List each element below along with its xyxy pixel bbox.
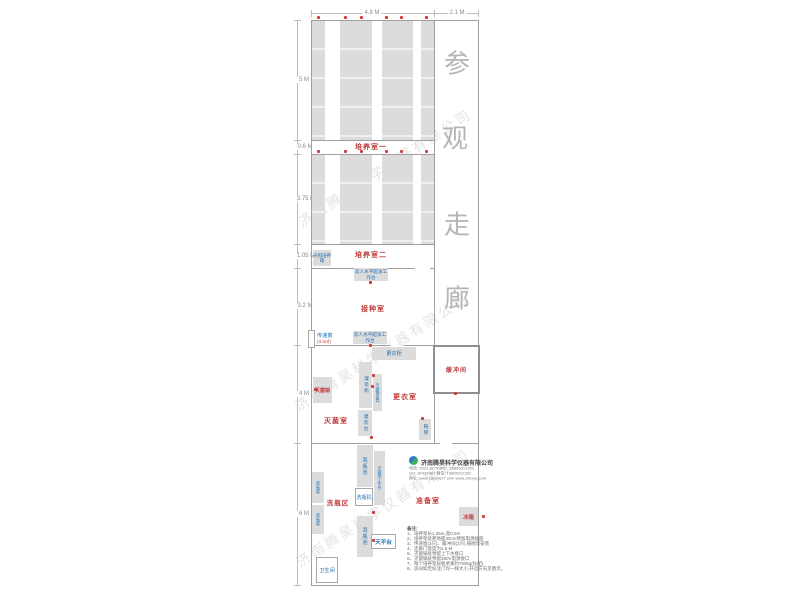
dimension-tick [434,10,435,17]
ss-stool-label: 不锈钢条凳 [375,383,381,403]
outlet-dot [360,16,363,19]
outlet-dot [317,150,320,153]
dimension-label-5m: 5 M [297,77,311,83]
filling-table-label: 灌装台 [362,414,369,431]
outlet-dot [385,150,388,153]
dimension-label-top-left: 4.8 M [362,10,381,16]
outlet-dot [454,392,457,395]
light-incubator-box: 光照培养箱 [313,250,331,266]
outlet-dot [369,281,372,284]
dimension-tick [294,268,301,269]
fridge-label: 冰箱 [463,513,474,521]
pass-window-label: 传递窗 [317,332,333,339]
dimension-tick [294,443,301,444]
ss-worktable-box: 不锈钢工作台 [374,451,385,505]
bottle-rack-2-label: 放瓶架 [315,513,321,526]
culture-rack [398,21,413,140]
corridor-char-3: 走 [444,205,470,242]
outlet-dot [372,511,375,514]
buffer-room-box: 缓冲间 [433,345,480,394]
culture-rack [382,155,398,244]
wall-culture2-top [311,244,434,245]
outlet-dot [317,16,320,19]
dimension-tick [294,140,301,141]
fridge-box: 冰箱 [459,507,478,526]
outlet-dot [400,16,403,19]
dimension-label-6m: 6 M [297,511,311,517]
dimension-tick [294,20,301,21]
clean-bench-1-box: 双人水平超净工作台 [354,268,388,281]
wall-culture1-bottom [311,154,434,155]
shoe-rack-label: 鞋架 [422,424,429,436]
wall-corridor-divider-lower [434,394,435,443]
soak-pool-2-label: 泡瓶池 [362,527,369,546]
bottle-rack-2-box: 放瓶架 [312,505,324,534]
balance-table-label: 天平台 [375,538,392,546]
room-label-buffer: 缓冲间 [446,365,467,374]
soak-pool-1-box: 泡瓶池 [357,445,373,487]
locker-label: 更衣柜 [386,350,402,357]
culture-rack [421,21,434,140]
locker-box: 更衣柜 [372,347,416,360]
light-incubator-label: 光照培养箱 [313,253,331,263]
bottle-rack-1-box: 放瓶架 [312,472,324,503]
dimension-tick [294,585,301,586]
culture-rack [357,155,372,244]
outlet-dot [314,388,317,391]
clean-bench-2-box: 双人水平超净工作台 [353,331,387,344]
company-web-line: 网址: www.sdkxyq17.com www.cnkxyq.com [409,476,549,481]
outlet-dot [385,16,388,19]
outlet-dot [482,515,485,518]
wall-culture1-top [311,140,434,141]
notes-block: 备注: 1、培养架长1.25m,宽0.5m 2、培养架处距地面30cm预留电源插… [407,526,557,571]
note-item-8: 8、房间如无标注门均一样大小,开启方向见图示。 [407,566,557,571]
outlet-dot [344,16,347,19]
outlet-dot [344,150,347,153]
corridor-char-4: 廊 [444,279,470,316]
culture-rack [357,21,372,140]
outlet-dot [371,385,374,388]
room-label-sterilization: 灭菌室 [324,416,348,426]
dimension-tick [294,154,301,155]
bottle-washer-box: 洗瓶机 [355,488,373,506]
soak-pool-1-label: 泡瓶池 [362,457,369,476]
sterilizer-pot-label: 灭菌锅 [315,387,330,394]
culture-rack [398,155,413,244]
culture-rack [312,155,325,244]
pass-window-box [308,330,315,348]
outlet-dot [370,436,373,439]
clean-bench-1-label: 双人水平超净工作台 [354,269,388,280]
wall-prep-top [311,443,440,444]
toilet-label: 卫生间 [319,567,335,574]
outlet-dot [372,374,375,377]
wall-corridor-divider-upper [434,20,435,345]
dimension-tick [478,10,479,17]
outlet-dot [372,539,375,542]
culture-rack [340,155,357,244]
bottle-rack-1-label: 放瓶架 [315,481,321,494]
wall-inoculation-top-seg [430,268,434,269]
room-label-inoculation: 接种室 [361,304,385,314]
outlet-dot [425,150,428,153]
culture-rack [382,21,398,140]
bottle-washer-label: 洗瓶机 [356,494,371,501]
company-logo-icon [409,456,418,465]
wall-prep-top-seg [452,443,479,444]
dimension-tick [311,10,312,17]
company-contact-block: 电话: 0531-87799827, 15866012352 QQ: 87437… [409,466,549,481]
outlet-dot [425,16,428,19]
wall-sterilization-top [311,345,390,346]
room-label-prep: 准备室 [416,496,440,506]
outlet-dot [360,150,363,153]
filling-table-box: 灌装台 [358,410,372,436]
room-label-culture2: 培养室二 [355,250,387,260]
culture-rack [312,21,325,140]
toilet-box: 卫生间 [316,557,338,583]
ss-stool-box: 不锈钢条凳 [373,374,382,411]
wall-bottom [311,585,479,586]
shoe-rack-box: 鞋架 [419,419,431,440]
room-label-changing: 更衣室 [393,392,417,402]
clean-bench-2-label: 双人水平超净工作台 [353,332,387,343]
pass-window-area-label: (3.6㎡) [317,339,331,345]
outlet-dot [400,150,403,153]
ss-worktable-label: 不锈钢工作台 [377,466,383,489]
corridor-char-1: 参 [444,44,470,81]
dimension-label-4m: 4 M [297,391,311,397]
dimension-tick [294,345,301,346]
floor-plan-canvas: 济南腾昊科学仪器有限公司 济南腾昊科学仪器有限公司 济南腾昊科学仪器有限公司 4… [0,0,800,600]
outlet-dot [421,417,424,420]
wall-right [478,20,479,586]
culture-rack [340,21,357,140]
wall-sterilization-top-seg [404,345,434,346]
culture-rack [421,155,434,244]
room-label-washing: 洗瓶区 [327,497,350,507]
dimension-label-top-right: 2.1 M [447,10,466,16]
corridor-char-2: 观 [442,119,468,156]
filling-machine-label: 灌装机 [362,376,369,393]
outlet-dot [369,344,372,347]
dimension-tick [294,244,301,245]
